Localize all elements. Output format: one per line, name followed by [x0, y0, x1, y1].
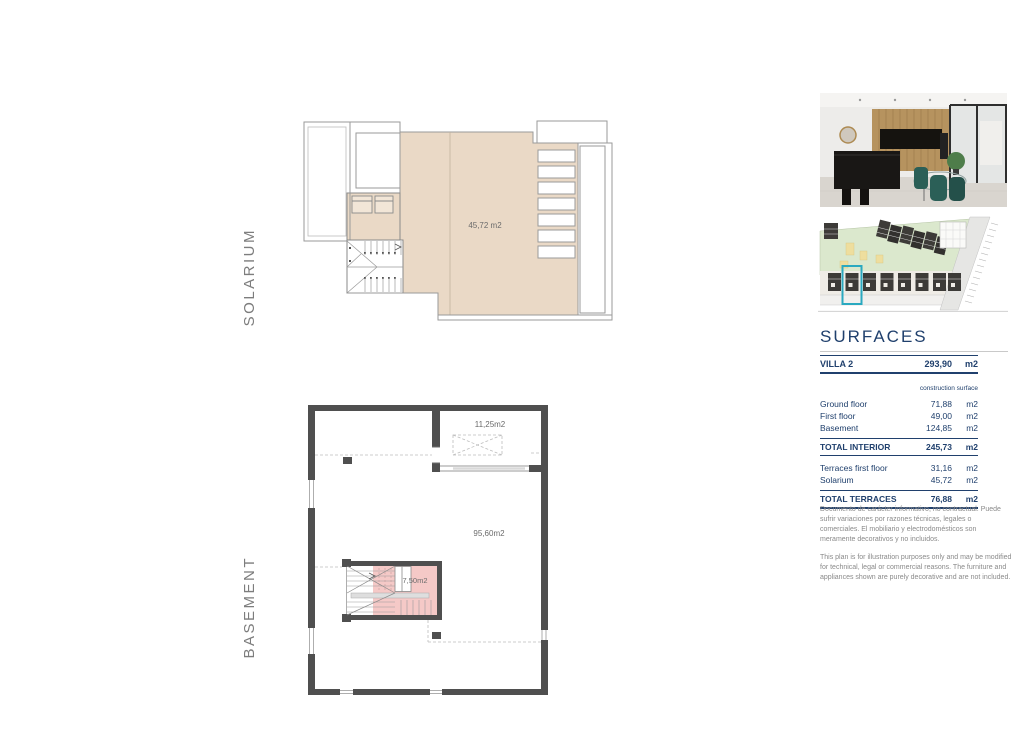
plant — [947, 152, 965, 170]
disclaimer-en: This plan is for illustration purposes o… — [820, 553, 1012, 583]
solarium-area-label: 45,72 m2 — [468, 221, 502, 230]
basement-main-area-label: 95,60m2 — [473, 529, 505, 538]
disclaimer: Documento de carácter informativo, no co… — [820, 505, 1012, 591]
construction-surface-label: construction surface — [820, 385, 978, 392]
basement-floor-plan: 11,25m2 95,60m2 7,50m2 — [303, 402, 553, 700]
brochure-page: SOLARIUM BASEMENT — [0, 0, 1030, 729]
basement-stairs-area-label: 7,50m2 — [402, 576, 427, 585]
basement-stair-core — [342, 559, 442, 622]
basement-floor-label: BASEMENT — [241, 556, 258, 659]
storage-room-edge — [432, 447, 541, 472]
pergola-slats — [538, 150, 575, 258]
table-row-solarium: Solarium 45,72 m2 — [820, 474, 978, 486]
site-plan — [818, 215, 1008, 312]
table-row-total-interior: TOTAL INTERIOR 245,73 m2 — [820, 438, 978, 456]
table-row-terraces-first-floor: Terraces first floor 31,16 m2 — [820, 462, 978, 474]
title-rule — [820, 351, 1008, 352]
table-row-villa: VILLA 2 293,90 m2 — [820, 355, 978, 374]
round-mirror — [840, 127, 856, 143]
table-row-ground-floor: Ground floor 71,88 m2 — [820, 398, 978, 410]
solarium-stairs — [347, 240, 403, 293]
basement-storage-area-label: 11,25m2 — [475, 420, 506, 429]
kitchen-island — [834, 151, 900, 189]
interior-photo — [820, 93, 1007, 207]
table-row-basement: Basement 124,85 m2 — [820, 422, 978, 434]
surfaces-title: SURFACES — [820, 327, 928, 347]
solarium-floor-label: SOLARIUM — [241, 228, 258, 326]
surfaces-table: VILLA 2 293,90 m2 construction surface G… — [820, 355, 978, 509]
table-row-first-floor: First floor 49,00 m2 — [820, 410, 978, 422]
solarium-floor-plan: 45,72 m2 — [295, 110, 625, 330]
disclaimer-es: Documento de carácter informativo, no co… — [820, 505, 1012, 545]
